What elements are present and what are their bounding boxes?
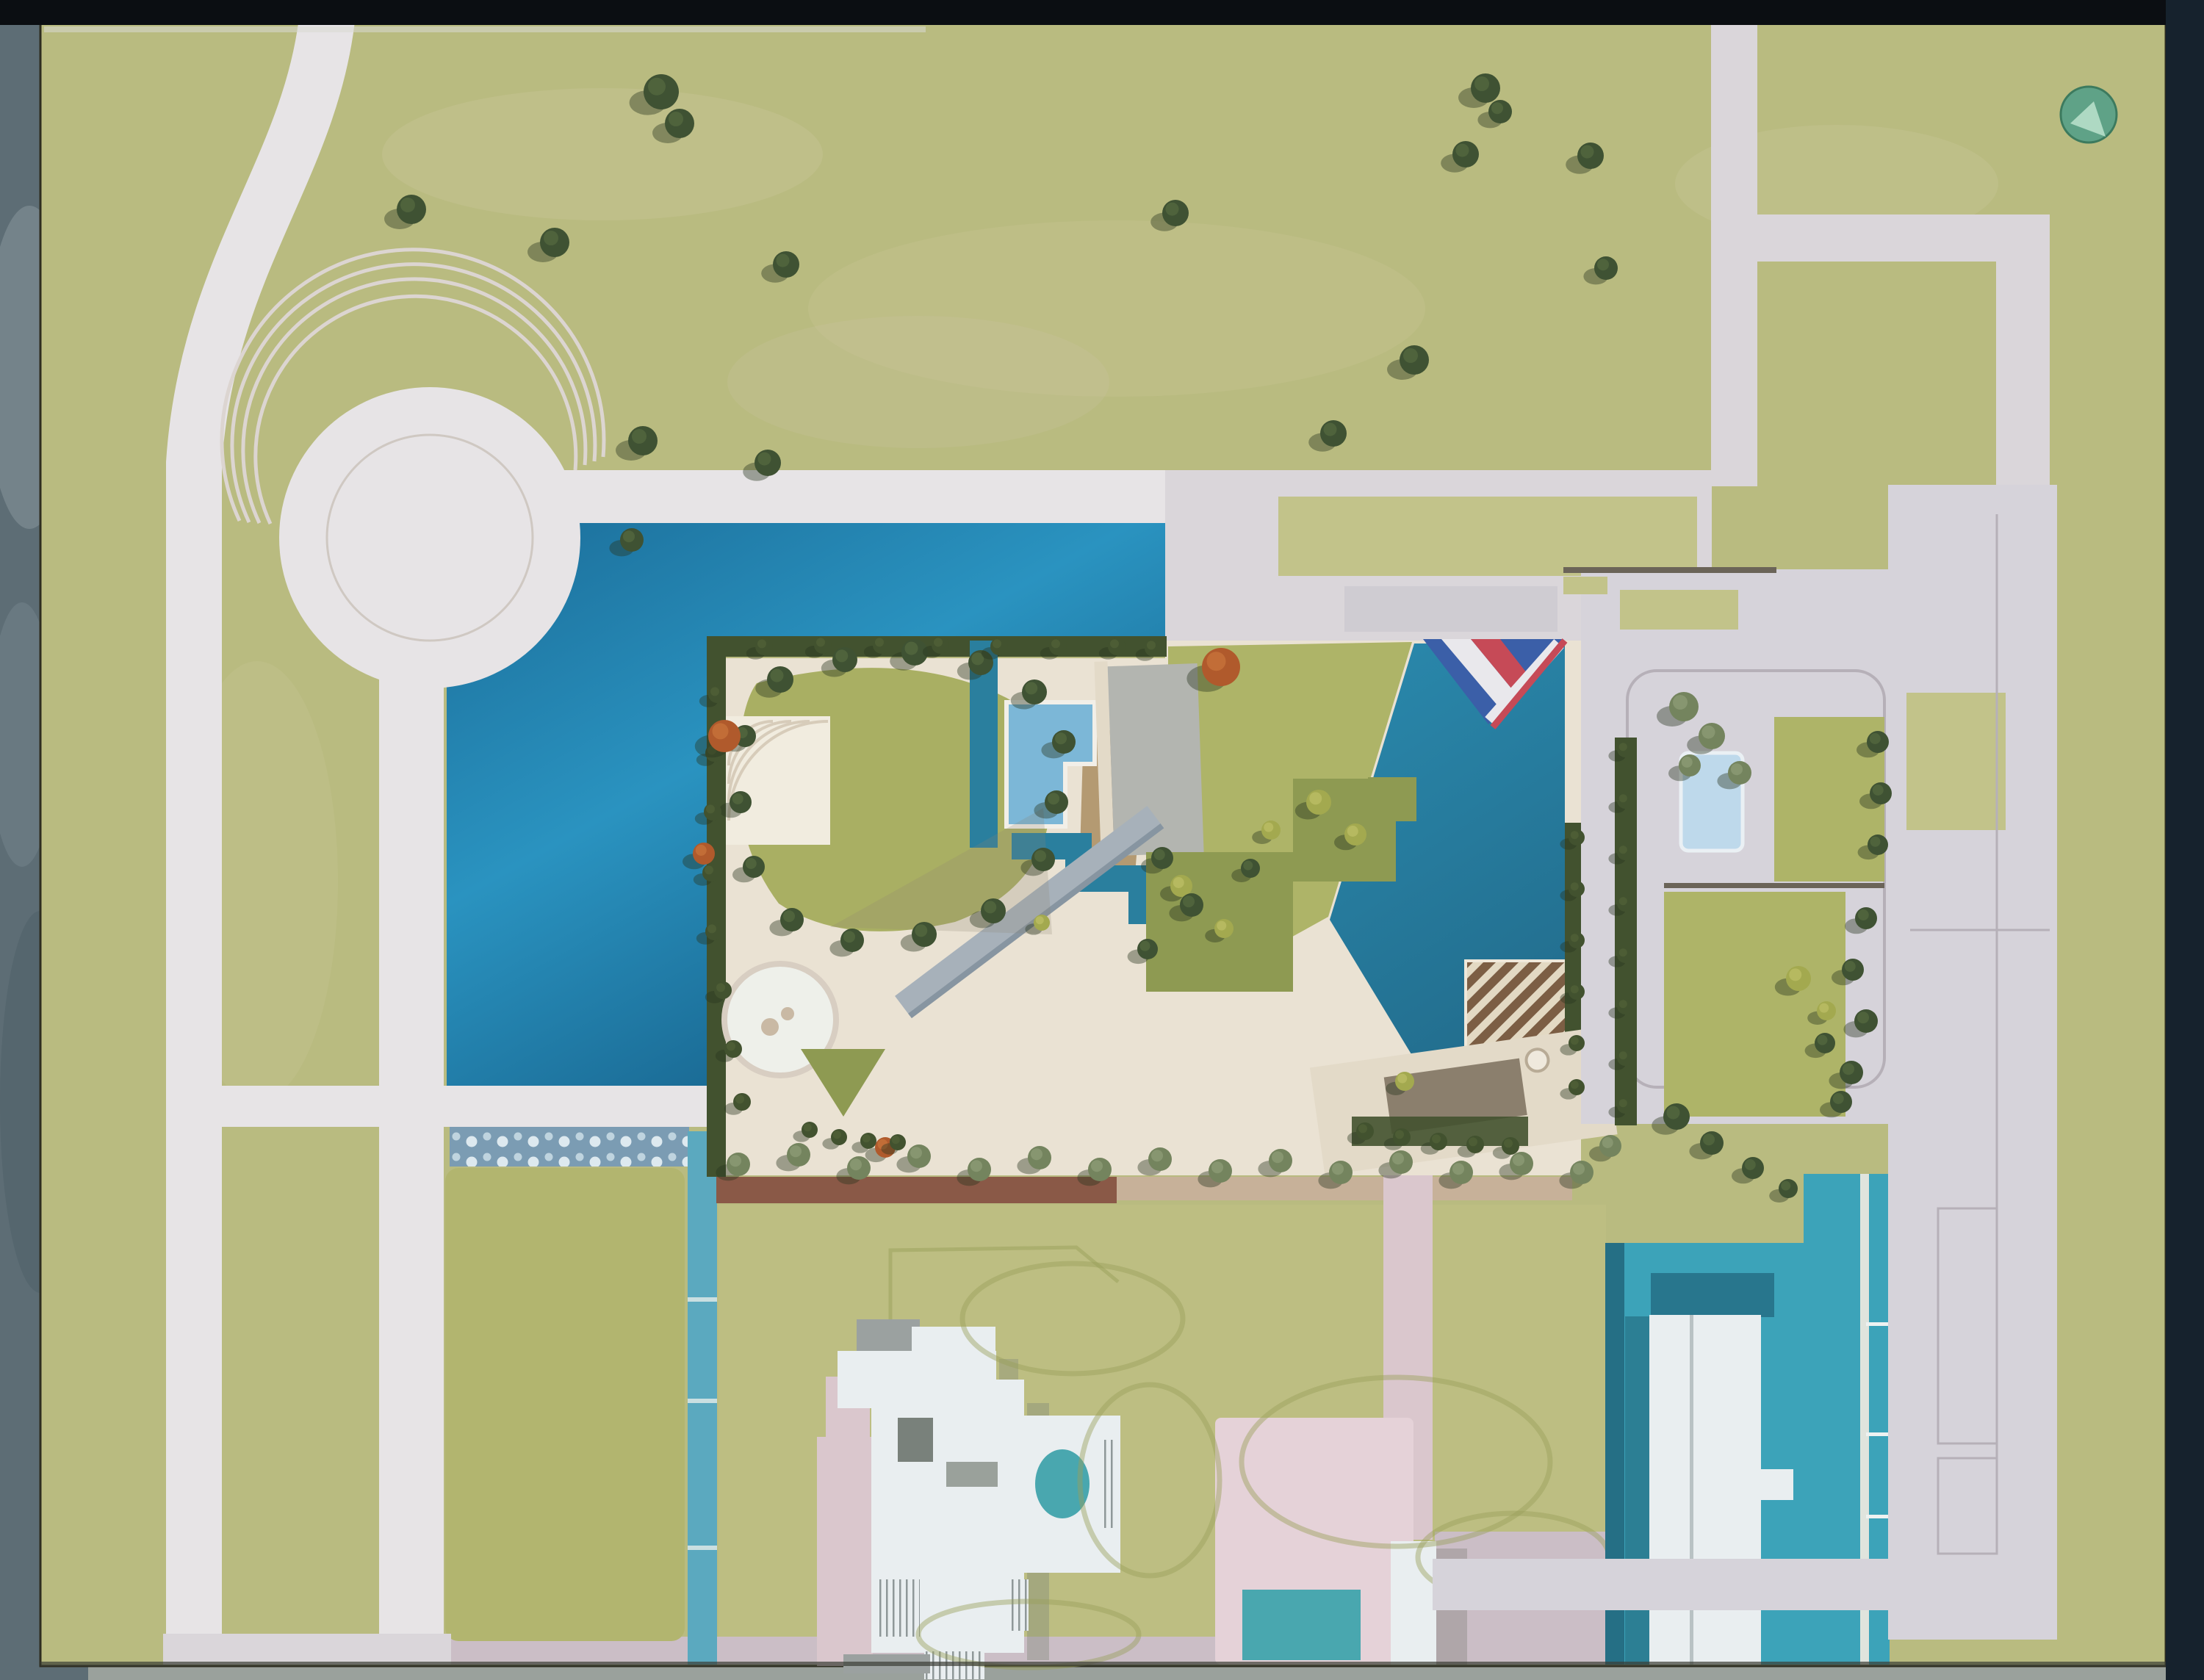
tree-highlight <box>1673 695 1688 710</box>
building-shadow <box>1651 1273 1774 1317</box>
garden-compound <box>707 636 1618 1177</box>
house-clerestory <box>946 1462 998 1487</box>
house-courtyard-notch <box>898 1418 933 1462</box>
tree-highlight <box>1055 732 1067 744</box>
northeast-street <box>1996 214 2050 485</box>
tree-highlight <box>1682 757 1693 768</box>
tree-highlight <box>1731 763 1743 775</box>
tree-highlight <box>777 254 790 267</box>
south-grounds <box>445 1121 1607 1679</box>
tree-highlight <box>1602 1137 1613 1148</box>
tree-highlight <box>1474 76 1489 91</box>
house-pink-ground <box>817 1437 873 1666</box>
sunken-court <box>1344 586 1557 632</box>
tree-highlight <box>1789 968 1801 981</box>
weir-road <box>217 1086 708 1127</box>
tree-highlight <box>1456 144 1469 157</box>
tree-highlight <box>1504 1139 1513 1147</box>
tree-highlight <box>1619 1051 1627 1059</box>
white-gate-tower <box>1391 1541 1436 1665</box>
tree-highlight <box>1392 1153 1404 1164</box>
tree-highlight <box>623 530 635 542</box>
tree-highlight <box>1703 1133 1715 1145</box>
parcel-lawn-north <box>1620 590 1738 630</box>
tree-highlight <box>746 858 757 869</box>
pier-tick <box>1866 1515 1891 1518</box>
tree-highlight <box>993 639 1001 648</box>
tree-highlight <box>1243 861 1253 870</box>
drain-channel <box>688 1131 717 1665</box>
tree-highlight <box>804 1123 812 1131</box>
tree-highlight <box>1358 1124 1367 1133</box>
tree-highlight <box>705 865 713 874</box>
tree-highlight <box>1873 785 1884 796</box>
tree-highlight <box>713 723 729 739</box>
parcel-lawn-south <box>1664 892 1845 1117</box>
tree-highlight <box>1309 792 1322 804</box>
tree-highlight <box>970 1160 982 1172</box>
tree-highlight <box>875 638 884 646</box>
tree-highlight <box>1818 1035 1828 1045</box>
tree-highlight <box>1036 916 1044 924</box>
tree-highlight <box>400 198 415 212</box>
tree-highlight <box>905 642 918 655</box>
tree-highlight <box>1211 1161 1223 1173</box>
tree-highlight <box>706 804 715 813</box>
tree-highlight <box>1573 1163 1585 1175</box>
weir-sparkle-texture <box>450 1125 689 1167</box>
tree-highlight <box>1581 145 1594 159</box>
tree-highlight <box>1619 794 1627 802</box>
tree-highlight <box>1571 1081 1579 1089</box>
roof-ridge-line <box>1690 1315 1693 1665</box>
garden-parterre <box>1368 777 1416 821</box>
table-edge-top <box>0 0 2204 25</box>
courtyard-pool <box>1242 1590 1361 1660</box>
tree-highlight <box>843 931 855 942</box>
east-boulevard <box>1888 485 2057 1640</box>
tree-highlight <box>771 669 784 682</box>
tree-highlight <box>850 1158 862 1170</box>
tree-highlight <box>1781 1181 1790 1191</box>
tree-highlight <box>1395 1130 1404 1139</box>
tree-highlight <box>1619 1099 1627 1107</box>
tree-highlight <box>632 429 647 444</box>
channel-joint <box>688 1546 717 1550</box>
tree-highlight <box>727 1042 735 1050</box>
tree-highlight <box>1819 1003 1829 1013</box>
tree-highlight <box>1571 1037 1579 1045</box>
tree-highlight <box>1397 1074 1407 1084</box>
tree-highlight <box>669 112 683 126</box>
tree-highlight <box>1151 1150 1163 1161</box>
tree-highlight <box>710 687 719 696</box>
tree-highlight <box>1619 948 1627 956</box>
tree-highlight <box>862 1134 871 1142</box>
tree-highlight <box>934 638 943 646</box>
tree-highlight <box>757 639 766 648</box>
tree-highlight <box>783 910 795 922</box>
pier-tick <box>1866 1322 1891 1326</box>
house-roof-gray <box>857 1319 920 1352</box>
tree-highlight <box>735 1095 744 1103</box>
tree-highlight <box>1347 826 1358 837</box>
tree-highlight <box>1469 1137 1477 1146</box>
model-photo-stage <box>0 0 2204 1680</box>
building-shadow <box>1625 1316 1652 1665</box>
tree-highlight <box>910 1147 922 1158</box>
tree-highlight <box>1332 1163 1344 1175</box>
tree-highlight <box>1619 846 1627 854</box>
tree-highlight <box>1857 1012 1869 1023</box>
tree-highlight <box>835 649 848 662</box>
tree-highlight <box>1051 639 1060 648</box>
tree-highlight <box>892 1136 900 1144</box>
tree-highlight <box>1031 1148 1042 1160</box>
house-louvers <box>1011 1579 1029 1631</box>
tree-highlight <box>1513 1154 1524 1166</box>
tree-highlight <box>1833 1093 1844 1104</box>
board-bottom-edge <box>40 1662 2166 1666</box>
tree-highlight <box>1166 203 1179 216</box>
tree-highlight <box>1870 733 1881 744</box>
tree-highlight <box>1403 348 1418 363</box>
site-model-drawing <box>0 0 2204 1680</box>
tree-highlight <box>833 1131 841 1139</box>
hedge-west <box>707 636 726 1177</box>
west-green-block <box>445 1168 685 1641</box>
tree-highlight <box>1173 877 1184 888</box>
tree-highlight <box>1183 895 1195 907</box>
gallery-oculus <box>1525 1048 1550 1072</box>
tree-highlight <box>1870 837 1881 847</box>
tree-highlight <box>1702 726 1715 739</box>
tree-highlight <box>1619 743 1627 751</box>
garden-wall-trellis <box>716 1177 1117 1203</box>
tree-highlight <box>732 793 743 804</box>
east-parcel <box>1563 567 1888 1125</box>
tree-highlight <box>730 1155 741 1167</box>
patio-furniture <box>781 1007 794 1020</box>
building-annex <box>1760 1469 1793 1500</box>
channel-joint <box>688 1297 717 1302</box>
tree-highlight <box>1025 682 1037 694</box>
tree-highlight <box>915 924 927 937</box>
tree-highlight <box>1207 652 1226 671</box>
tree-highlight <box>1147 641 1156 649</box>
tree-highlight <box>1091 1160 1103 1172</box>
tree-highlight <box>648 78 666 95</box>
tree-highlight <box>1619 897 1627 905</box>
tree-highlight <box>1217 921 1226 931</box>
tree-highlight <box>1048 793 1059 804</box>
north-street <box>1711 24 1757 486</box>
tree-highlight <box>1571 882 1579 890</box>
table-edge-right <box>2166 0 2204 1680</box>
tree-highlight <box>1597 259 1609 270</box>
tree-highlight <box>544 231 558 245</box>
tree-highlight <box>716 983 725 992</box>
parcel-north-wall <box>1563 567 1776 573</box>
tree-highlight <box>1491 102 1503 114</box>
tree-highlight <box>1619 1000 1627 1008</box>
tree-highlight <box>1272 1151 1283 1163</box>
tree-highlight <box>1571 831 1579 839</box>
tree-highlight <box>1845 961 1856 972</box>
tree-highlight <box>1264 823 1273 832</box>
tree-highlight <box>1858 909 1869 920</box>
plaza-lawn-panel <box>1278 497 1697 576</box>
court-divider-wall <box>1664 883 1884 888</box>
glass-disc-marker <box>2061 87 2117 143</box>
tree-highlight <box>1034 850 1046 862</box>
grass-mottle <box>727 316 1109 448</box>
tree-highlight <box>1667 1106 1680 1120</box>
tree-highlight <box>1110 639 1119 648</box>
board-trim <box>44 26 926 32</box>
tree-highlight <box>707 924 716 933</box>
tree-highlight <box>758 453 771 466</box>
tree-highlight <box>1324 423 1337 436</box>
terrace-louvers <box>1102 1440 1114 1528</box>
tree-highlight <box>790 1145 802 1157</box>
plaza-disc <box>279 387 580 688</box>
tree-highlight <box>696 845 707 856</box>
pier-tick <box>1866 1432 1891 1436</box>
tree-highlight <box>1843 1063 1854 1075</box>
patio-furniture <box>761 1018 779 1036</box>
house-louvers <box>879 1579 920 1637</box>
white-tower-building <box>1649 1315 1761 1665</box>
tree-highlight <box>1745 1159 1756 1170</box>
southwest-road <box>163 1634 451 1665</box>
tree-highlight <box>1140 941 1150 951</box>
wall-planter <box>1563 577 1607 594</box>
boulevard-median-lawn <box>1906 693 2006 830</box>
harbor-crossing-road <box>1433 1559 1926 1610</box>
tree-highlight <box>1432 1134 1441 1143</box>
tree-highlight <box>1571 985 1579 993</box>
tree-highlight <box>1154 849 1165 860</box>
tree-highlight <box>816 638 825 646</box>
tree-highlight <box>1571 934 1579 942</box>
tree-highlight <box>984 901 996 913</box>
channel-joint <box>688 1399 717 1403</box>
tree-highlight <box>1452 1163 1464 1175</box>
grass-mottle <box>382 88 823 220</box>
